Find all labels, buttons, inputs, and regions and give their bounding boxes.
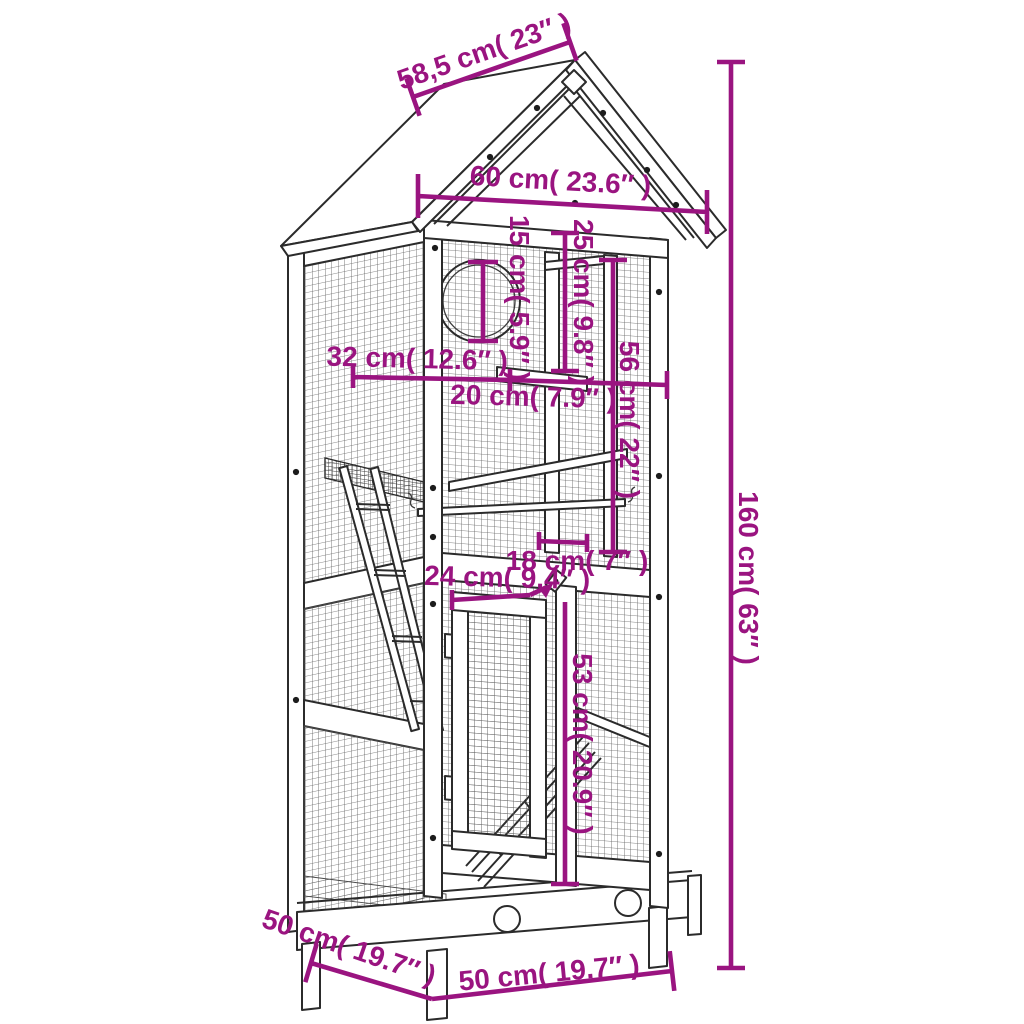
back-left-post	[288, 248, 304, 932]
base-knob-right	[615, 890, 641, 916]
door-right-stile	[530, 599, 546, 858]
dimension-diagram-page: 58,5 cm( 23″ ) 60 cm( 23.6″ ) 15 cm( 5.9…	[0, 0, 1024, 1024]
door-hinge-top	[445, 634, 452, 658]
cage-drawing	[281, 52, 726, 1020]
dim-door-width-label: 24 cm( 9.4″ )	[424, 560, 591, 595]
cage-left-face	[288, 224, 443, 932]
dim-total-height-label: 160 cm( 63″ )	[733, 491, 764, 665]
dim-hole-diameter-label: 15 cm( 5.9″ )	[504, 215, 535, 381]
bird-cage-dimension-diagram: 58,5 cm( 23″ ) 60 cm( 23.6″ ) 15 cm( 5.9…	[0, 0, 1024, 1024]
dim-base-width: 50 cm( 19.7″ )	[432, 948, 674, 999]
door-left-stile	[452, 592, 468, 850]
door-mesh	[468, 612, 530, 840]
dim-shelf-width-label: 32 cm( 12.6″ )	[326, 341, 508, 377]
gable-roof	[281, 52, 726, 256]
leg-front-right	[649, 906, 667, 968]
dim-upper-section-height-label: 56 cm( 22″ )	[614, 341, 645, 499]
door-hinge-bottom	[445, 776, 452, 800]
front-right-post	[650, 238, 668, 908]
dim-total-height: 160 cm( 63″ )	[717, 62, 764, 968]
leg-back-right	[688, 875, 701, 935]
dim-nest-height-label: 25 cm( 9.8″ )	[568, 219, 599, 385]
dim-door-height-label: 53 cm( 20.9″ )	[567, 653, 598, 835]
base-knob-left	[494, 906, 520, 932]
dim-opening-width-label: 20 cm( 7.9″ )	[450, 379, 617, 414]
dim-base-width-label: 50 cm( 19.7″ )	[457, 948, 641, 996]
